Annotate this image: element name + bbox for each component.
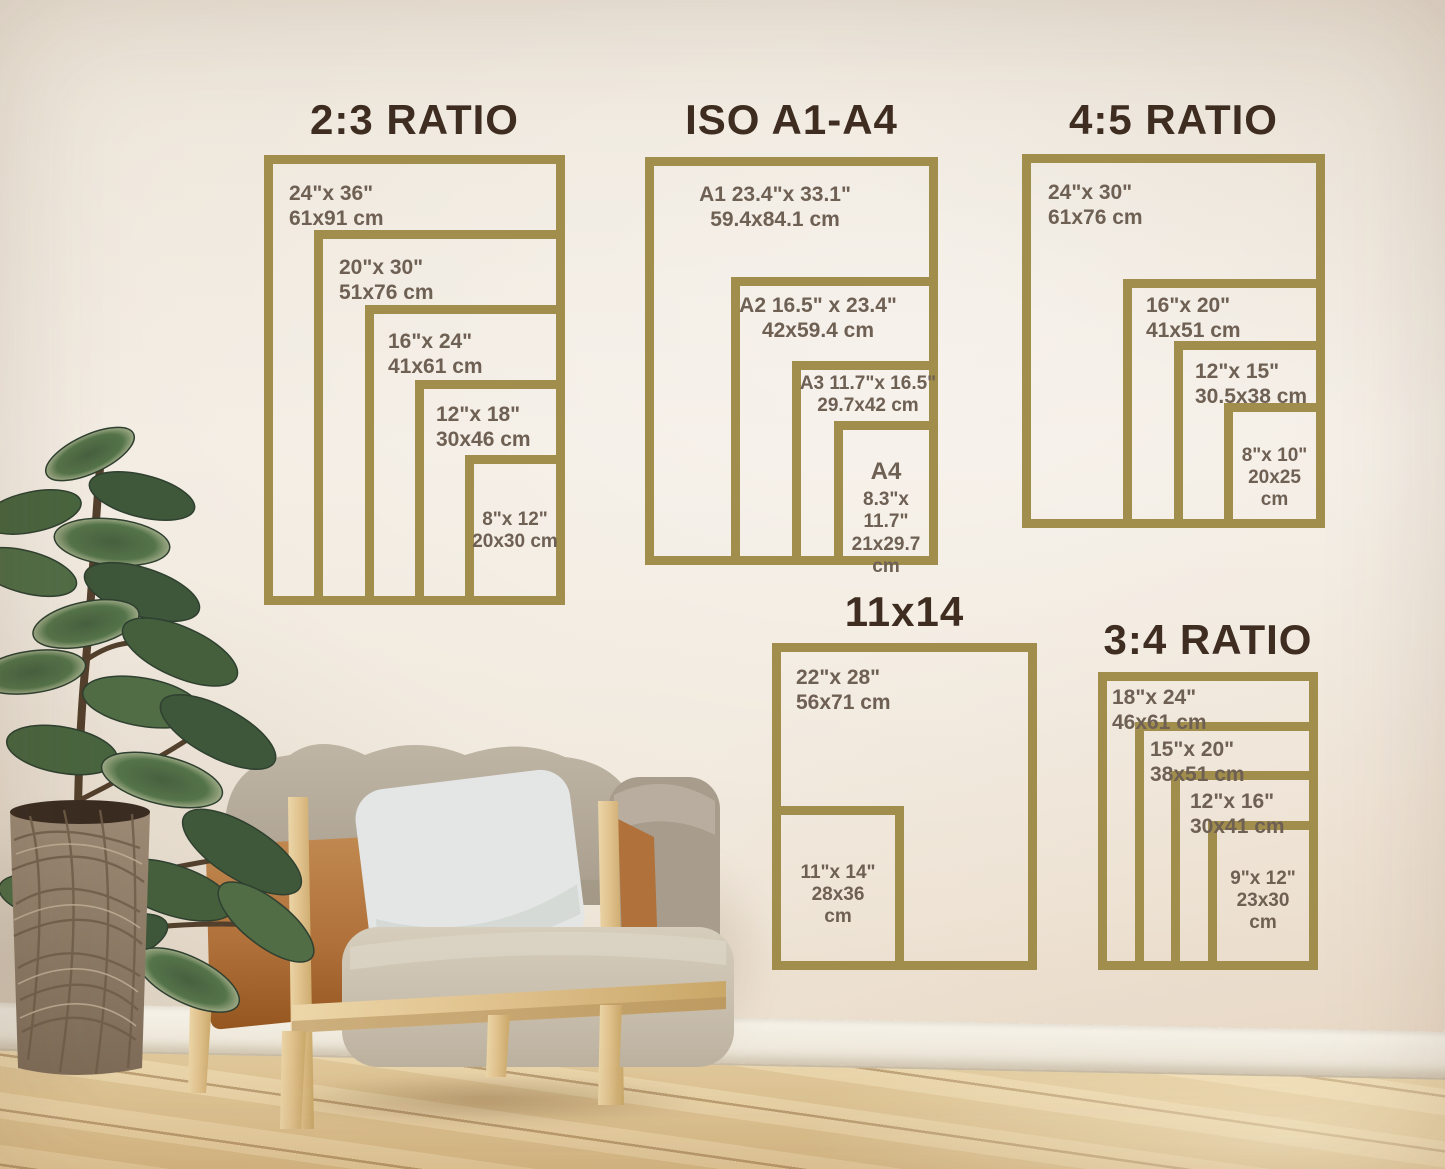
size-label-9x12: 9"x 12"23x30cm	[1210, 868, 1316, 935]
size-label-12x18: 12"x 18"30x46 cm	[436, 403, 531, 452]
group-title-11x14: 11x14	[772, 588, 1037, 636]
size-label-24x30: 24"x 30"61x76 cm	[1048, 181, 1143, 230]
potted-plant	[0, 420, 320, 1090]
size-label-8x10: 8"x 10"20x25cm	[1226, 445, 1323, 512]
size-label-15x20: 15"x 20"38x51 cm	[1150, 738, 1245, 787]
room-scene: 2:3 RATIO 24"x 36"61x91 cm 20"x 30"51x76…	[0, 0, 1445, 1169]
group-title-4-5-ratio: 4:5 RATIO	[1022, 96, 1325, 144]
size-label-8x12: 8"x 12"20x30 cm	[467, 509, 563, 553]
group-title-3-4-ratio: 3:4 RATIO	[1098, 616, 1318, 664]
size-label-22x28: 22"x 28"56x71 cm	[796, 666, 891, 715]
size-label-a4: A48.3"x 11.7" 21x29.7cm	[838, 458, 934, 578]
size-label-a3: A3 11.7"x 16.5"29.7x42 cm	[778, 373, 958, 417]
group-title-2-3-ratio: 2:3 RATIO	[264, 96, 565, 144]
size-label-16x20: 16"x 20"41x51 cm	[1146, 294, 1241, 343]
size-label-12x15: 12"x 15"30.5x38 cm	[1195, 360, 1307, 409]
size-label-20x30: 20"x 30"51x76 cm	[339, 256, 434, 305]
size-label-a1: A1 23.4"x 33.1"59.4x84.1 cm	[650, 183, 900, 232]
size-label-12x16: 12"x 16"30x41 cm	[1190, 790, 1285, 839]
group-title-iso: ISO A1-A4	[645, 96, 938, 144]
size-label-24x36: 24"x 36"61x91 cm	[289, 182, 384, 231]
size-label-a2: A2 16.5" x 23.4"42x59.4 cm	[718, 294, 918, 343]
size-label-16x24: 16"x 24"41x61 cm	[388, 330, 483, 379]
size-label-18x24: 18"x 24"46x61 cm	[1112, 686, 1207, 735]
